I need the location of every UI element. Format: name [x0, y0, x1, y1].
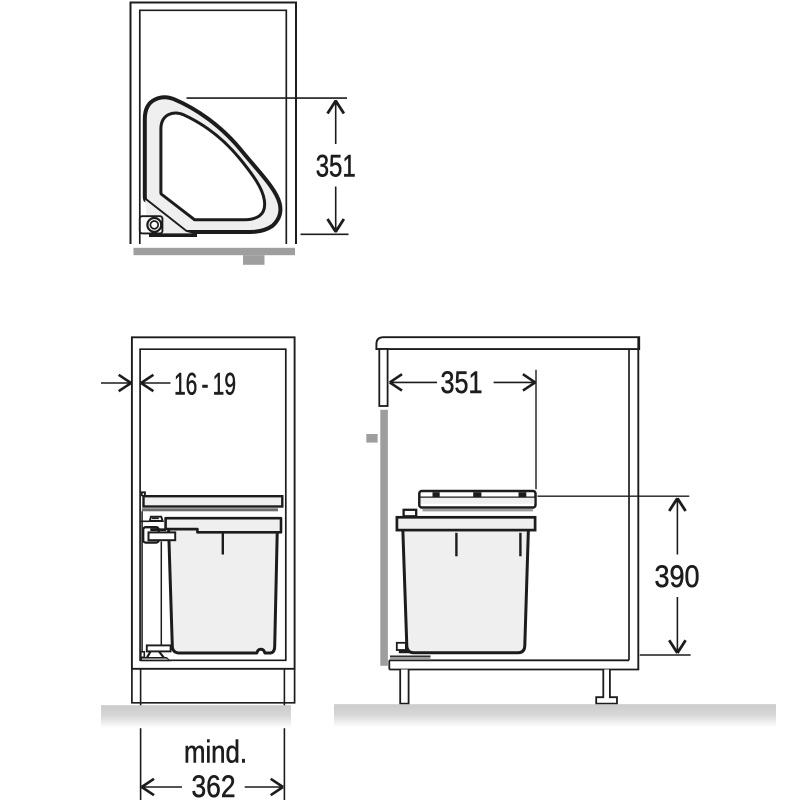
- svg-text:390: 390: [655, 558, 700, 594]
- svg-text:mind.: mind.: [184, 734, 247, 770]
- svg-text:16 - 19: 16 - 19: [174, 365, 236, 401]
- svg-text:351: 351: [316, 148, 356, 184]
- svg-text:351: 351: [441, 364, 483, 400]
- svg-text:362: 362: [192, 768, 236, 800]
